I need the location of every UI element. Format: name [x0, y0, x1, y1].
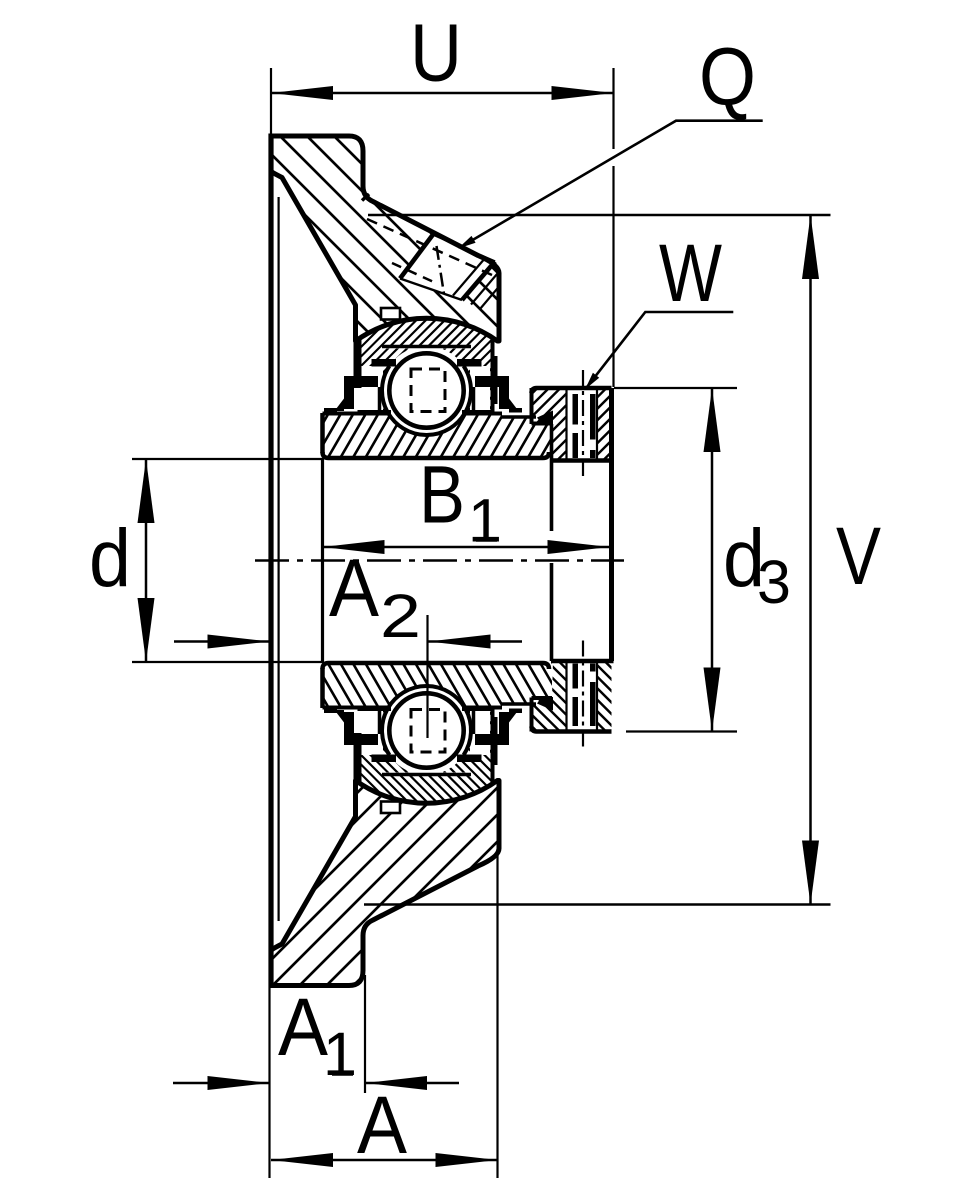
svg-text:V: V [836, 511, 881, 602]
svg-text:1: 1 [468, 487, 502, 555]
svg-text:A: A [278, 982, 328, 1073]
svg-text:Q: Q [699, 32, 756, 123]
svg-text:2: 2 [380, 582, 421, 650]
svg-text:B: B [419, 450, 465, 541]
svg-text:W: W [659, 228, 722, 319]
svg-text:A: A [329, 543, 379, 634]
svg-text:1: 1 [323, 1020, 357, 1088]
svg-text:d: d [89, 513, 131, 604]
svg-text:U: U [410, 8, 462, 99]
svg-text:3: 3 [757, 548, 791, 616]
svg-text:A: A [357, 1080, 407, 1171]
